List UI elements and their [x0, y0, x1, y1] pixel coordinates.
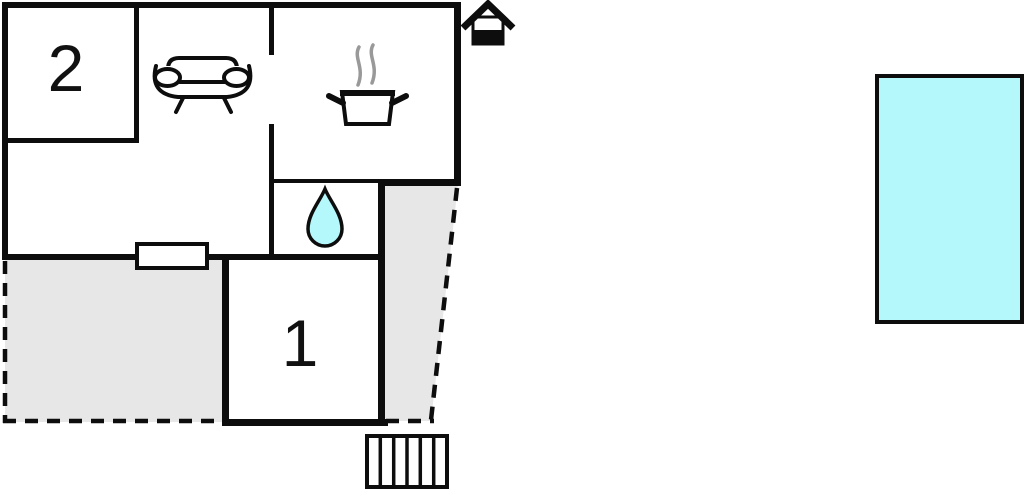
floor-plan-svg: 2 1: [0, 0, 1024, 490]
wall-outdoor-top: [378, 179, 458, 186]
wall-bathroom-top: [269, 179, 379, 183]
wall-room1-left: [222, 254, 229, 426]
wall-room1-bottom: [222, 419, 388, 426]
swimming-pool: [877, 76, 1022, 322]
house-body-lower: [473, 30, 503, 44]
wall-divider-upper: [269, 2, 274, 55]
wall-kitchen-right: [454, 2, 461, 186]
room-label-1: 1: [282, 306, 319, 380]
stairs-icon: [367, 436, 447, 487]
cooking-pot-icon: [329, 45, 406, 124]
pot-body: [342, 92, 393, 124]
wall-left: [2, 2, 8, 258]
sofa-armrest-left: [155, 69, 180, 86]
house-icon: [463, 4, 513, 44]
steam-icon: [357, 45, 374, 85]
wall-room2-bottom: [2, 138, 139, 143]
water-drop-icon: [308, 189, 342, 246]
wall-top: [2, 2, 461, 8]
sofa-icon: [155, 58, 251, 112]
sofa-armrest-right: [224, 69, 249, 86]
wall-room1-right: [378, 181, 385, 426]
window-symbol: [137, 244, 207, 268]
wall-room2-right: [134, 2, 139, 143]
room-label-2: 2: [48, 31, 85, 105]
terrace-area-right: [385, 185, 458, 421]
wall-divider-lower: [269, 124, 274, 256]
terrace-area-left: [5, 258, 224, 422]
floor-plan-canvas: 2 1: [0, 0, 1024, 490]
